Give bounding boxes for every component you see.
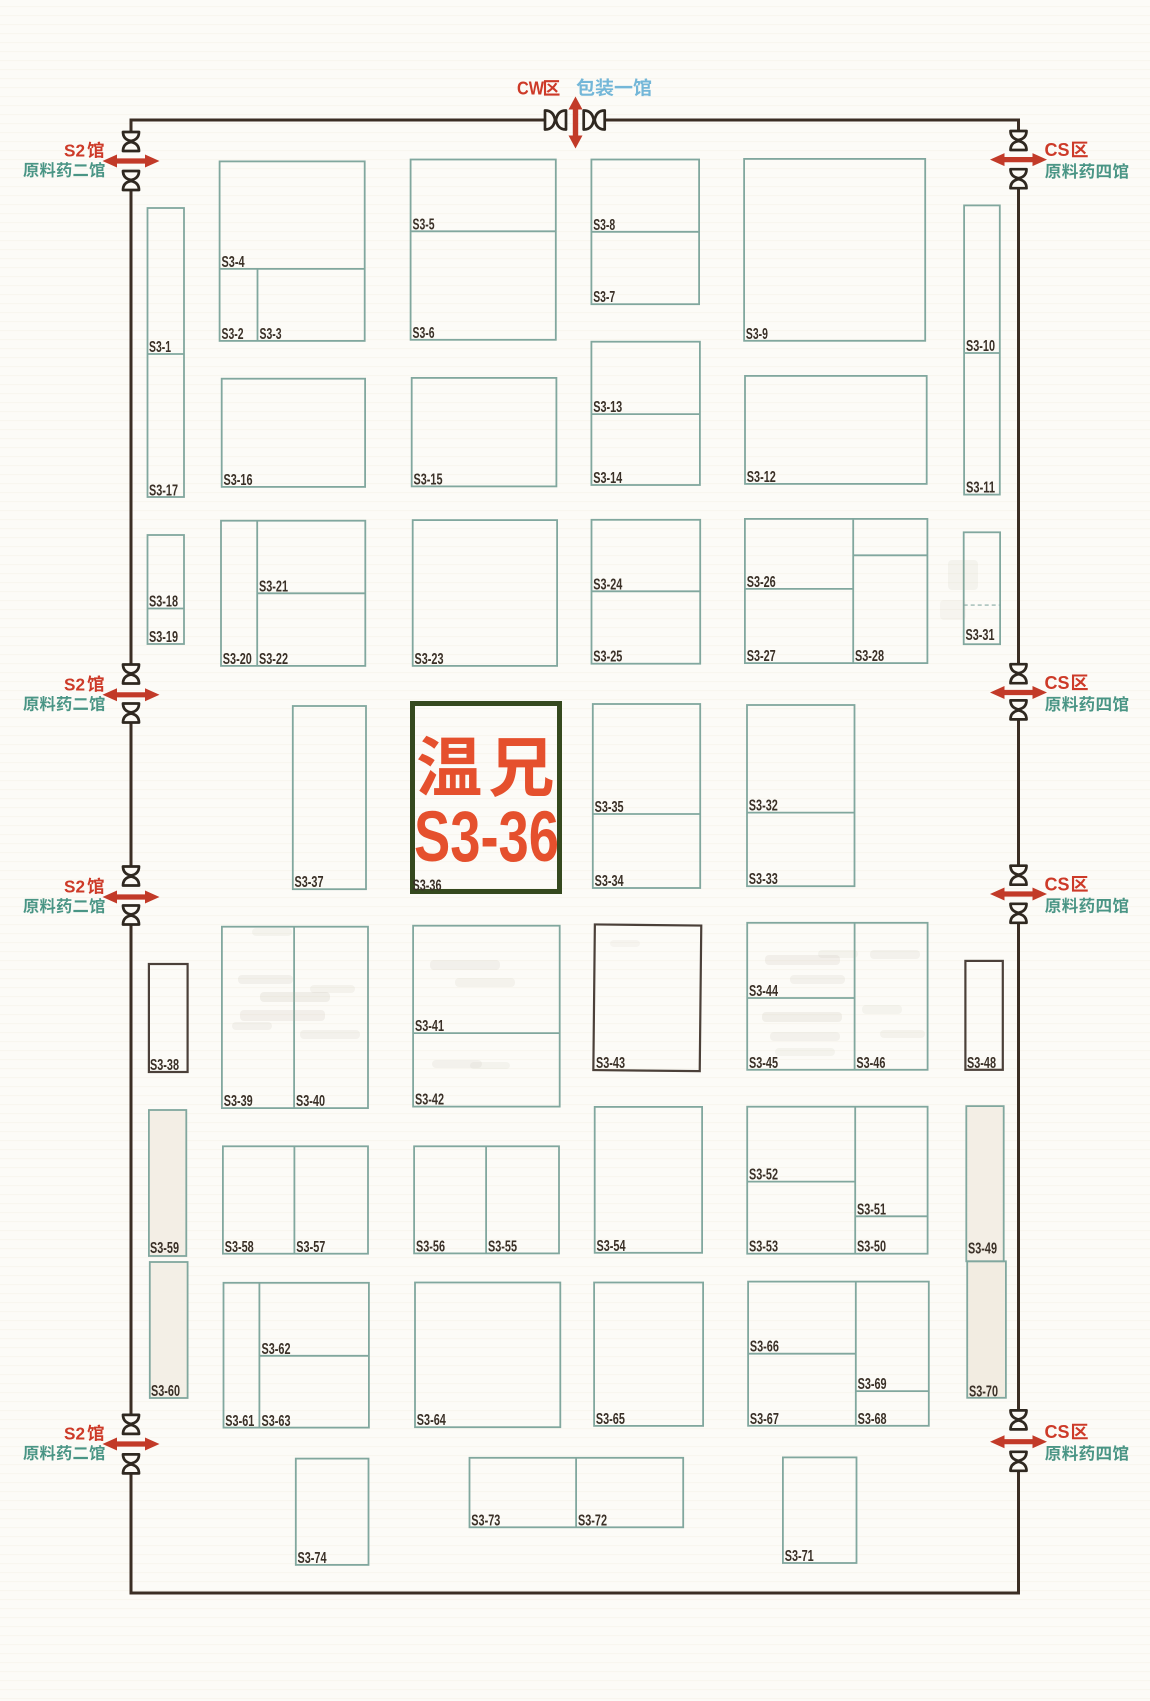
svg-text:S2: S2 <box>64 877 85 897</box>
svg-text:S2: S2 <box>64 1424 85 1444</box>
svg-text:S3-70: S3-70 <box>969 1384 998 1401</box>
svg-text:S3-17: S3-17 <box>149 483 178 500</box>
svg-text:S3-5: S3-5 <box>413 216 435 233</box>
svg-text:S3-14: S3-14 <box>593 470 622 487</box>
svg-text:S3-16: S3-16 <box>224 472 253 489</box>
svg-text:S3-34: S3-34 <box>595 873 624 890</box>
svg-text:S3-42: S3-42 <box>415 1092 444 1109</box>
svg-text:S3-18: S3-18 <box>149 594 178 611</box>
svg-text:S3-32: S3-32 <box>749 798 778 815</box>
svg-text:CW: CW <box>517 78 544 99</box>
svg-text:S3-40: S3-40 <box>296 1093 325 1110</box>
svg-text:S3-23: S3-23 <box>415 651 444 668</box>
svg-text:S3-31: S3-31 <box>966 627 995 644</box>
svg-text:S3-49: S3-49 <box>968 1241 997 1258</box>
svg-text:S3-24: S3-24 <box>593 576 622 593</box>
svg-text:S3-74: S3-74 <box>298 1550 327 1567</box>
svg-text:S3-22: S3-22 <box>259 651 288 668</box>
svg-text:S3-68: S3-68 <box>858 1411 887 1428</box>
svg-text:S3-27: S3-27 <box>747 648 776 665</box>
svg-text:S3-59: S3-59 <box>150 1240 179 1257</box>
svg-text:S3-9: S3-9 <box>746 326 768 343</box>
svg-text:S3-48: S3-48 <box>967 1055 996 1072</box>
svg-text:S3-60: S3-60 <box>151 1383 180 1400</box>
svg-text:S3-51: S3-51 <box>857 1201 886 1218</box>
svg-text:S3-37: S3-37 <box>295 874 324 891</box>
svg-text:S2: S2 <box>64 674 85 694</box>
svg-text:S3-15: S3-15 <box>414 471 443 488</box>
svg-text:S3-21: S3-21 <box>259 578 288 595</box>
svg-text:S3-1: S3-1 <box>149 339 171 356</box>
svg-text:S3-25: S3-25 <box>593 649 622 666</box>
svg-text:S3-54: S3-54 <box>597 1238 626 1255</box>
svg-text:S3-46: S3-46 <box>856 1055 885 1072</box>
svg-text:S3-71: S3-71 <box>785 1548 814 1565</box>
svg-text:S3-52: S3-52 <box>749 1167 778 1184</box>
svg-text:S3-36: S3-36 <box>414 798 559 877</box>
svg-text:S3-43: S3-43 <box>596 1055 625 1072</box>
svg-text:S3-67: S3-67 <box>750 1411 779 1428</box>
svg-text:S3-39: S3-39 <box>224 1093 253 1110</box>
svg-text:S3-7: S3-7 <box>593 289 615 306</box>
svg-text:S3-10: S3-10 <box>966 338 995 355</box>
svg-text:S3-36: S3-36 <box>413 878 442 895</box>
svg-text:S3-69: S3-69 <box>858 1376 887 1393</box>
svg-text:S3-55: S3-55 <box>488 1238 517 1255</box>
svg-text:S3-38: S3-38 <box>150 1057 179 1074</box>
svg-text:S3-3: S3-3 <box>260 326 282 343</box>
svg-text:S3-12: S3-12 <box>747 469 776 486</box>
svg-text:CS: CS <box>1045 140 1070 160</box>
svg-text:S2: S2 <box>64 141 85 161</box>
svg-text:S3-26: S3-26 <box>747 574 776 591</box>
svg-text:S3-64: S3-64 <box>417 1412 446 1429</box>
svg-text:S3-4: S3-4 <box>222 254 245 271</box>
svg-text:S3-58: S3-58 <box>225 1239 254 1256</box>
svg-text:S3-6: S3-6 <box>413 325 435 342</box>
svg-text:S3-53: S3-53 <box>749 1239 778 1256</box>
svg-text:S3-61: S3-61 <box>225 1413 254 1430</box>
svg-text:S3-19: S3-19 <box>149 629 178 646</box>
svg-text:CS: CS <box>1045 673 1070 693</box>
svg-text:S3-2: S3-2 <box>222 326 244 343</box>
svg-text:S3-66: S3-66 <box>750 1339 779 1356</box>
svg-text:S3-41: S3-41 <box>415 1018 444 1035</box>
svg-text:S3-62: S3-62 <box>262 1341 291 1358</box>
svg-text:S3-35: S3-35 <box>595 799 624 816</box>
svg-text:S3-65: S3-65 <box>596 1411 625 1428</box>
svg-text:S3-50: S3-50 <box>857 1239 886 1256</box>
svg-text:S3-73: S3-73 <box>471 1512 500 1529</box>
svg-text:S3-72: S3-72 <box>578 1512 607 1529</box>
svg-text:S3-45: S3-45 <box>749 1055 778 1072</box>
svg-text:S3-8: S3-8 <box>593 217 615 234</box>
svg-text:S3-56: S3-56 <box>416 1238 445 1255</box>
svg-text:S3-11: S3-11 <box>966 480 995 497</box>
svg-text:CS: CS <box>1045 1422 1070 1442</box>
svg-text:S3-13: S3-13 <box>593 399 622 416</box>
svg-text:S3-57: S3-57 <box>296 1239 325 1256</box>
svg-text:S3-28: S3-28 <box>855 648 884 665</box>
svg-text:S3-20: S3-20 <box>223 651 252 668</box>
svg-text:CS: CS <box>1045 875 1070 895</box>
svg-text:S3-63: S3-63 <box>262 1413 291 1430</box>
svg-text:S3-44: S3-44 <box>749 983 778 1000</box>
svg-text:S3-33: S3-33 <box>749 871 778 888</box>
